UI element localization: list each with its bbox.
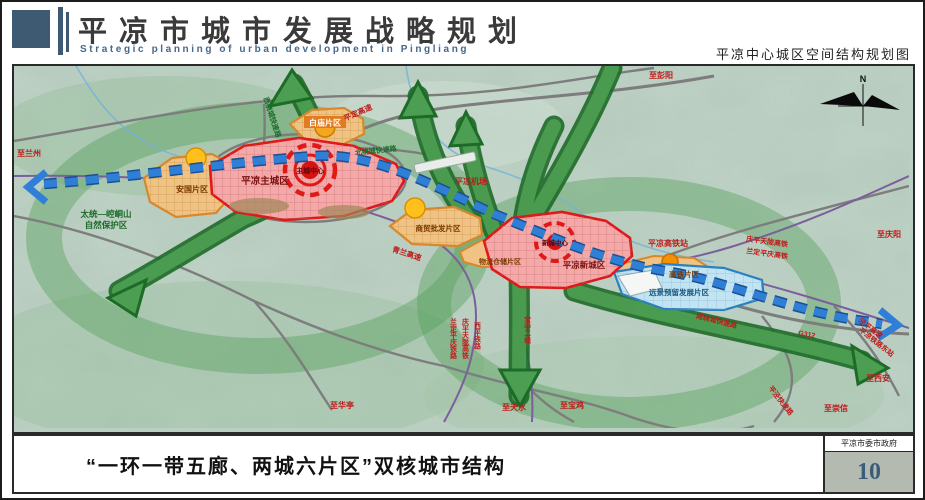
label-main-center: 主城中心 xyxy=(296,166,324,175)
label-to-qingyang: 至庆阳 xyxy=(877,229,901,239)
gov-label: 平凉市委市政府 xyxy=(825,436,913,452)
label-nature-2: 自然保护区 xyxy=(85,220,128,230)
label-logistics: 物流仓储片区 xyxy=(479,257,521,266)
planning-map-panel: N 平凉主城区 主城中心 平凉新城区 新城中心 安国片区 白庙片区 商贸批发片区… xyxy=(12,64,915,434)
label-new-city: 平凉新城区 xyxy=(563,260,606,270)
label-to-lanzhou: 至兰州 xyxy=(17,148,41,158)
label-reserved: 远景预留发展片区 xyxy=(649,287,709,297)
label-baimiao: 白庙片区 xyxy=(309,118,341,128)
label-airport: 平凉机场 xyxy=(455,176,487,186)
header-bar xyxy=(58,7,63,55)
label-to-pengyang: 至彭阳 xyxy=(649,70,673,80)
label-to-tianshui: 至天水 xyxy=(502,402,527,412)
page: 平凉市城市发展战略规划 Strategic planning of urban … xyxy=(0,0,925,500)
footer: “一环一带五廊、两城六片区”双核城市结构 平凉市委市政府 10 xyxy=(12,434,915,494)
page-number: 10 xyxy=(825,452,913,492)
label-to-baoji: 至宝鸡 xyxy=(560,400,584,410)
header-bar-thin xyxy=(66,12,69,52)
label-main-city: 平凉主城区 xyxy=(241,175,289,187)
planning-map: N 平凉主城区 主城中心 平凉新城区 新城中心 安国片区 白庙片区 商贸批发片区… xyxy=(14,66,909,428)
map-caption: “一环一带五廊、两城六片区”双核城市结构 xyxy=(86,450,506,479)
compass-n: N xyxy=(860,74,867,84)
page-title-en: Strategic planning of urban development … xyxy=(80,44,469,55)
label-trade: 商贸批发片区 xyxy=(416,223,461,233)
label-to-huating: 至华亭 xyxy=(330,400,354,410)
zone-new-city xyxy=(484,212,632,288)
label-new-center: 新城中心 xyxy=(542,238,569,247)
label-to-xian: 至西安 xyxy=(866,373,890,383)
label-to-chongxin: 至崇信 xyxy=(824,403,848,413)
label-nature-1: 太统—崆峒山 xyxy=(79,209,131,219)
label-hsr-zone: 高铁片区 xyxy=(669,269,699,279)
logo-square xyxy=(12,10,50,48)
label-hsr-station: 平凉高铁站 xyxy=(648,238,688,248)
gov-box: 平凉市委市政府 10 xyxy=(823,436,913,492)
map-subtitle: 平凉中心城区空间结构规划图 xyxy=(716,44,911,63)
header: 平凉市城市发展战略规划 Strategic planning of urban … xyxy=(2,2,923,64)
label-anguo: 安国片区 xyxy=(176,184,208,194)
